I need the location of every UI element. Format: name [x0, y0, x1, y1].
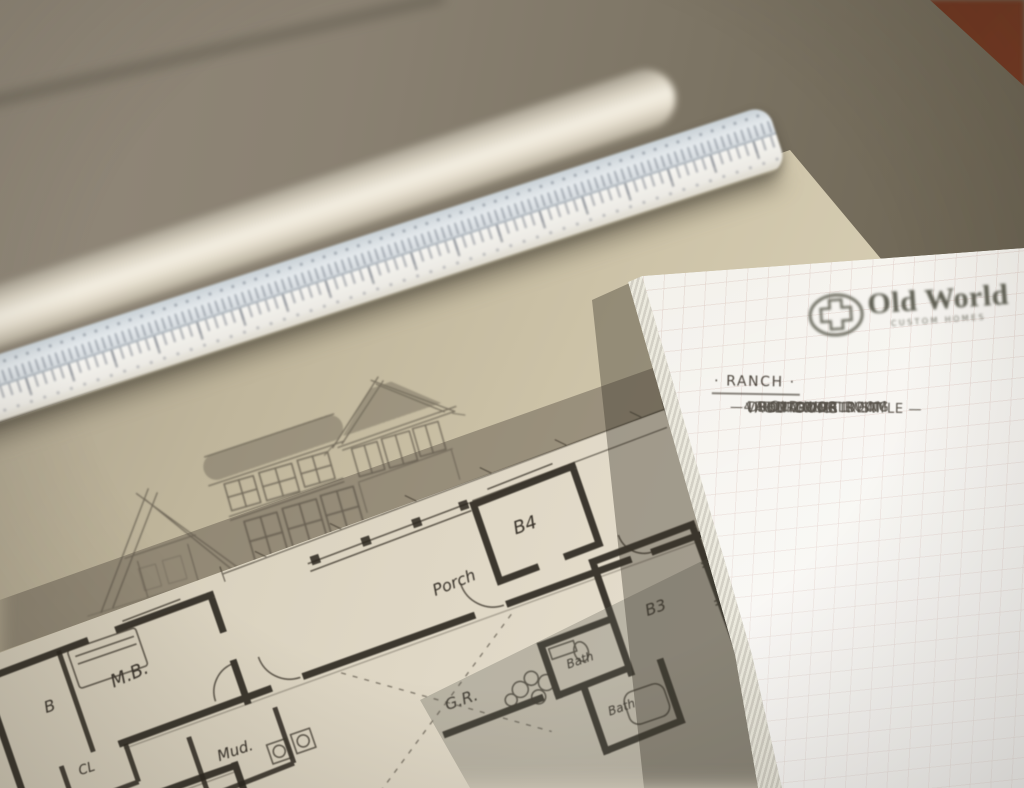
plan-room-label: CL: [77, 760, 97, 779]
plan-room-label: M.B.: [107, 658, 151, 693]
handwritten-note-line: OLD WORLD STYLE —: [770, 400, 922, 418]
plan-room-label: Mud.: [215, 736, 256, 765]
quatrefoil-cross-icon: [805, 290, 868, 340]
handwritten-title: · RANCH ·: [712, 373, 800, 396]
photo-architectural-sketch-scene: M.B. B CL Mud. Porch G.R. B4 B3 Bath Bat…: [0, 0, 1024, 788]
plan-room-label: B4: [510, 512, 539, 540]
plan-room-label: Porch: [430, 565, 479, 599]
plan-room-label: B: [41, 695, 58, 717]
